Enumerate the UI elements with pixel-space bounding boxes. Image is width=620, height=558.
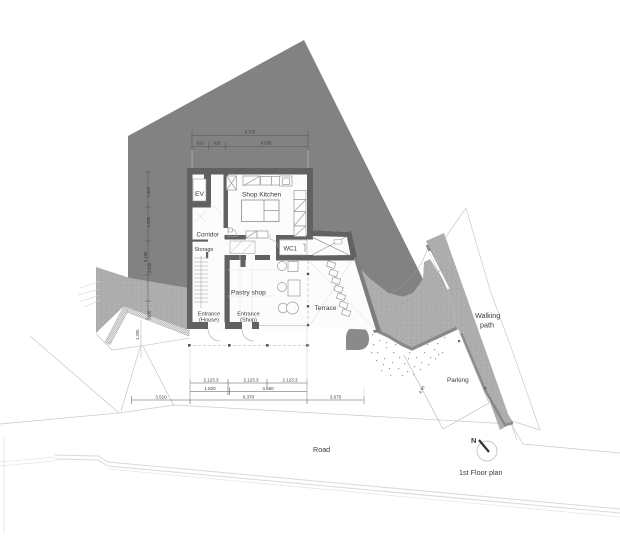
- svg-text:(Shop): (Shop): [240, 318, 257, 324]
- svg-text:1.200: 1.200: [135, 329, 140, 340]
- svg-text:Corridor: Corridor: [197, 232, 219, 239]
- svg-text:910: 910: [214, 141, 222, 146]
- svg-text:3.640: 3.640: [147, 262, 152, 273]
- svg-text:path: path: [480, 321, 494, 330]
- svg-text:N: N: [471, 436, 476, 445]
- svg-text:1.820: 1.820: [204, 386, 216, 391]
- svg-text:6.370: 6.370: [243, 395, 255, 400]
- svg-text:910: 910: [197, 141, 205, 146]
- svg-text:EV: EV: [195, 191, 205, 198]
- svg-text:1st Floor plan: 1st Floor plan: [459, 468, 503, 477]
- svg-text:4.550: 4.550: [261, 141, 272, 146]
- svg-text:5.190: 5.190: [143, 251, 148, 262]
- svg-text:Terrace: Terrace: [315, 305, 337, 312]
- svg-text:3.675: 3.675: [330, 395, 342, 400]
- svg-text:Parking: Parking: [447, 377, 469, 384]
- svg-text:3.510: 3.510: [155, 395, 167, 400]
- svg-text:1.820: 1.820: [146, 186, 151, 197]
- svg-text:Storage: Storage: [195, 247, 214, 253]
- svg-text:Road: Road: [313, 445, 330, 454]
- svg-text:970: 970: [147, 310, 152, 318]
- svg-text:2.123.3: 2.123.3: [243, 378, 259, 383]
- svg-text:WC1: WC1: [284, 247, 298, 253]
- svg-text:1.820: 1.820: [146, 216, 151, 227]
- svg-text:Shop Kitchen: Shop Kitchen: [242, 192, 282, 199]
- svg-text:6.370: 6.370: [245, 130, 256, 135]
- svg-text:(House): (House): [199, 318, 219, 324]
- svg-text:Walking: Walking: [475, 311, 500, 320]
- svg-text:4.550: 4.550: [262, 386, 274, 391]
- svg-text:Pastry shop: Pastry shop: [231, 290, 266, 297]
- svg-text:2.123.3: 2.123.3: [203, 378, 219, 383]
- svg-text:2.123.3: 2.123.3: [282, 378, 298, 383]
